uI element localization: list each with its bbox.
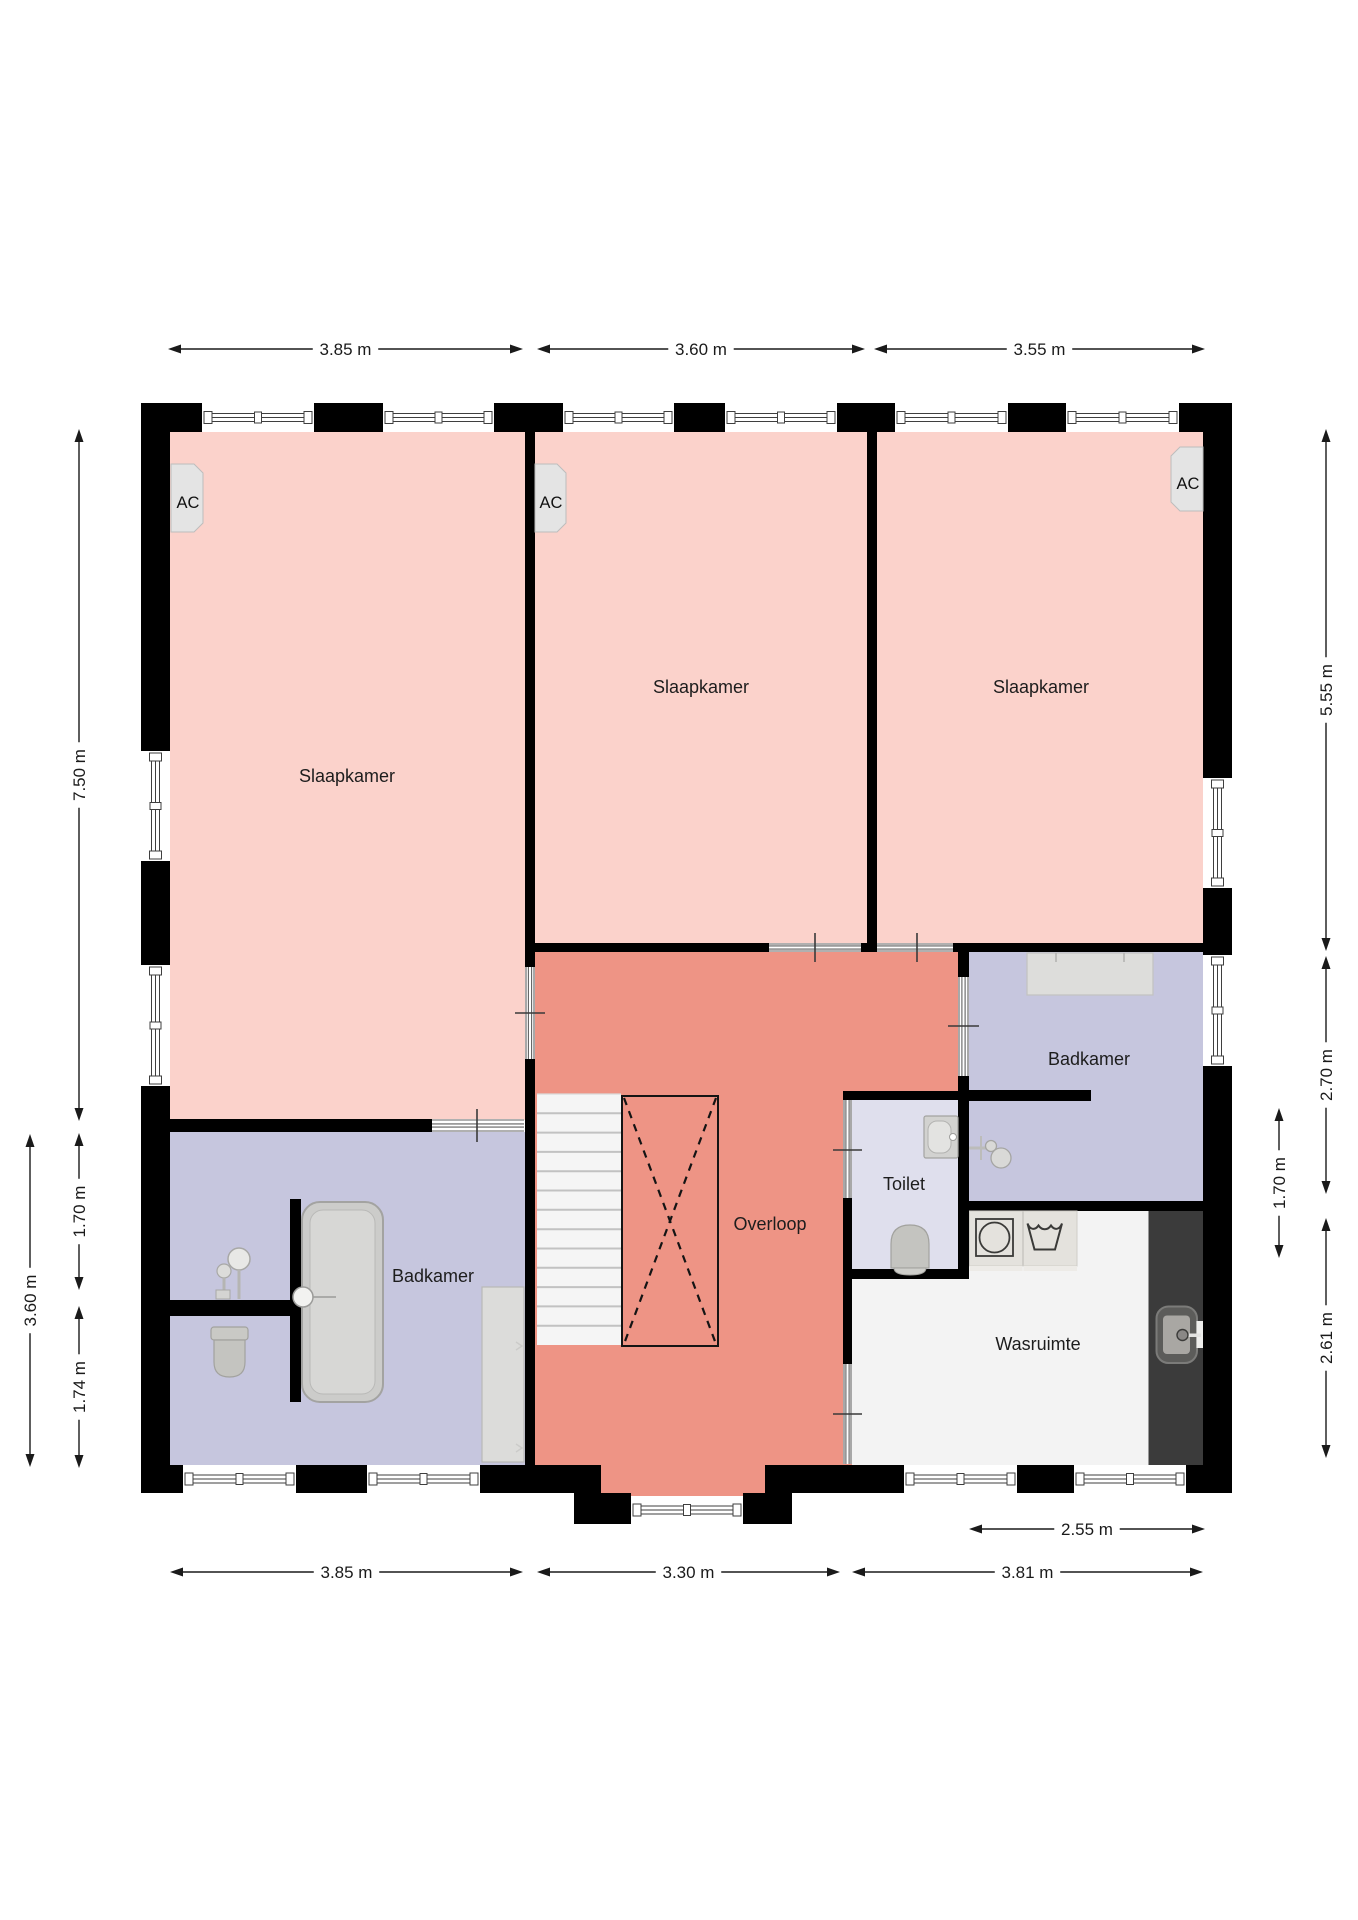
svg-text:3.60 m: 3.60 m	[675, 340, 727, 359]
svg-text:Toilet: Toilet	[883, 1174, 925, 1194]
svg-text:5.55 m: 5.55 m	[1317, 664, 1336, 716]
svg-text:1.74 m: 1.74 m	[70, 1361, 89, 1413]
svg-text:Badkamer: Badkamer	[1048, 1049, 1130, 1069]
svg-text:2.61 m: 2.61 m	[1317, 1312, 1336, 1364]
svg-text:AC: AC	[1177, 475, 1200, 493]
svg-text:Slaapkamer: Slaapkamer	[299, 766, 395, 786]
svg-text:AC: AC	[540, 494, 563, 512]
svg-text:1.70 m: 1.70 m	[1270, 1157, 1289, 1209]
svg-text:3.85 m: 3.85 m	[321, 1563, 373, 1582]
svg-text:Badkamer: Badkamer	[392, 1266, 474, 1286]
svg-text:3.60 m: 3.60 m	[21, 1275, 40, 1327]
svg-text:7.50 m: 7.50 m	[70, 749, 89, 801]
svg-text:3.85 m: 3.85 m	[320, 340, 372, 359]
svg-text:Overloop: Overloop	[733, 1214, 806, 1234]
svg-text:AC: AC	[177, 494, 200, 512]
svg-text:3.30 m: 3.30 m	[663, 1563, 715, 1582]
svg-text:1.70 m: 1.70 m	[70, 1186, 89, 1238]
svg-text:Slaapkamer: Slaapkamer	[993, 677, 1089, 697]
svg-text:Slaapkamer: Slaapkamer	[653, 677, 749, 697]
svg-text:3.55 m: 3.55 m	[1014, 340, 1066, 359]
svg-text:2.70 m: 2.70 m	[1317, 1049, 1336, 1101]
svg-text:2.55 m: 2.55 m	[1061, 1520, 1113, 1539]
svg-text:3.81 m: 3.81 m	[1002, 1563, 1054, 1582]
svg-text:Wasruimte: Wasruimte	[995, 1334, 1080, 1354]
